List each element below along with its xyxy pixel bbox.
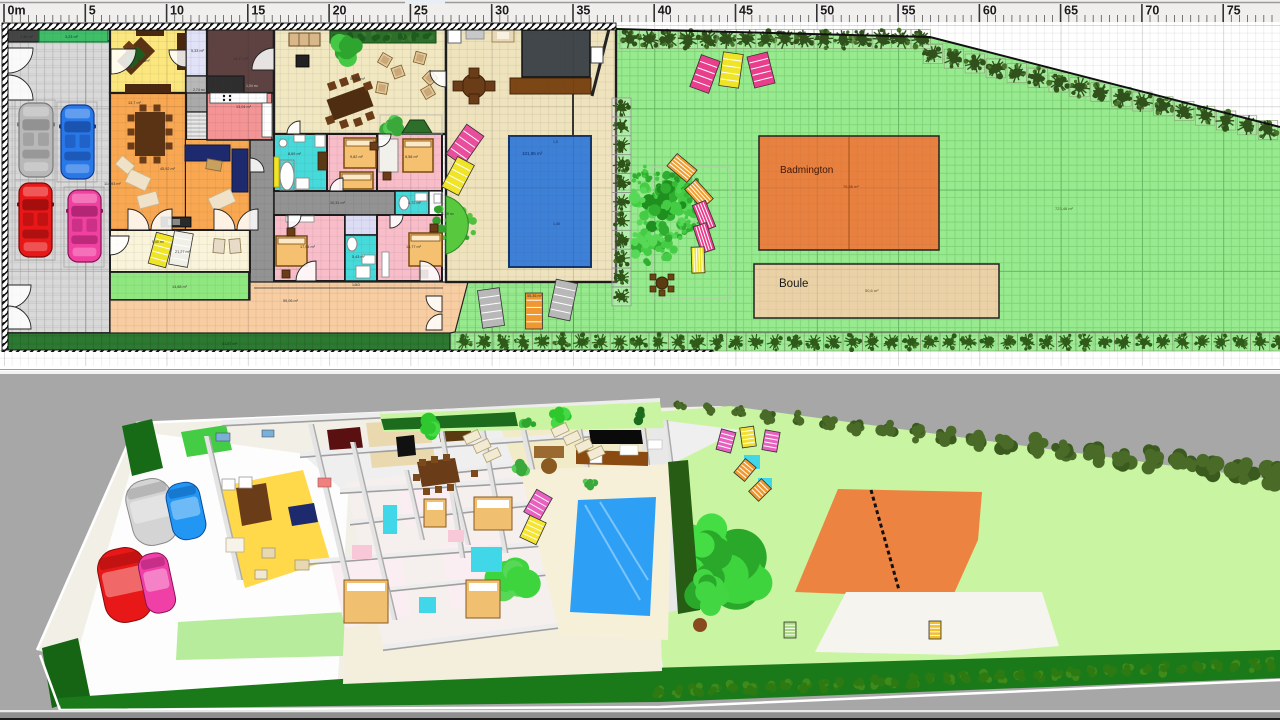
svg-text:55,36 m²: 55,36 m² bbox=[527, 294, 543, 298]
svg-text:8,58 m²: 8,58 m² bbox=[405, 155, 419, 159]
svg-text:10: 10 bbox=[170, 4, 184, 18]
svg-text:75: 75 bbox=[1227, 4, 1241, 18]
svg-text:114,93 m²: 114,93 m² bbox=[104, 182, 122, 186]
svg-text:Boule: Boule bbox=[779, 278, 808, 290]
svg-text:4,72 m²: 4,72 m² bbox=[408, 201, 422, 205]
svg-text:13,04 m²: 13,04 m² bbox=[236, 105, 252, 109]
svg-text:5,40 m²: 5,40 m² bbox=[152, 240, 165, 244]
svg-text:1,04 m²: 1,04 m² bbox=[246, 84, 259, 88]
svg-text:30: 30 bbox=[495, 4, 509, 18]
svg-text:1,40: 1,40 bbox=[553, 222, 560, 226]
svg-text:21,27 m²: 21,27 m² bbox=[175, 250, 191, 254]
svg-text:5,33 m²: 5,33 m² bbox=[191, 49, 205, 53]
svg-text:15: 15 bbox=[251, 4, 265, 18]
svg-text:31,87 m²: 31,87 m² bbox=[222, 342, 238, 346]
svg-text:25: 25 bbox=[414, 4, 428, 18]
svg-text:10,31 m²: 10,31 m² bbox=[330, 201, 346, 205]
svg-text:55: 55 bbox=[902, 4, 916, 18]
svg-text:1,30 m²: 1,30 m² bbox=[20, 35, 34, 39]
svg-text:101,95 m²: 101,95 m² bbox=[522, 151, 543, 156]
svg-text:2,74 m²: 2,74 m² bbox=[193, 88, 206, 92]
svg-text:9,82 m²: 9,82 m² bbox=[350, 155, 364, 159]
svg-text:8,69 m²: 8,69 m² bbox=[288, 152, 302, 156]
svg-text:45,92 m²: 45,92 m² bbox=[160, 167, 176, 171]
svg-text:Badmington: Badmington bbox=[780, 165, 833, 176]
svg-text:40: 40 bbox=[658, 4, 672, 18]
svg-text:8,18m²: 8,18m² bbox=[138, 59, 151, 63]
svg-text:76,86 m²: 76,86 m² bbox=[843, 184, 859, 189]
svg-text:1,39 m²: 1,39 m² bbox=[442, 212, 455, 216]
svg-text:59,06 m²: 59,06 m² bbox=[283, 299, 299, 303]
svg-text:0m: 0m bbox=[8, 4, 26, 18]
svg-text:65: 65 bbox=[1064, 4, 1078, 18]
svg-text:14,77 m²: 14,77 m² bbox=[406, 245, 422, 249]
svg-text:723,46 m²: 723,46 m² bbox=[1055, 206, 1074, 211]
svg-text:5: 5 bbox=[89, 4, 96, 18]
svg-text:35: 35 bbox=[576, 4, 590, 18]
svg-text:1463: 1463 bbox=[352, 283, 360, 287]
svg-text:45: 45 bbox=[739, 4, 753, 18]
svg-text:5,43 m²: 5,43 m² bbox=[352, 255, 366, 259]
svg-text:50,6 m²: 50,6 m² bbox=[865, 288, 879, 293]
svg-text:70: 70 bbox=[1145, 4, 1159, 18]
svg-text:13,17 m²: 13,17 m² bbox=[233, 57, 249, 61]
svg-text:50: 50 bbox=[820, 4, 834, 18]
svg-text:1,0: 1,0 bbox=[553, 140, 558, 144]
svg-text:13,7 m²: 13,7 m² bbox=[128, 101, 142, 105]
svg-text:59,34 m²: 59,34 m² bbox=[350, 77, 366, 81]
svg-text:14,68 m²: 14,68 m² bbox=[172, 285, 188, 289]
svg-text:20: 20 bbox=[333, 4, 347, 18]
svg-text:3,23 m²: 3,23 m² bbox=[65, 35, 79, 39]
svg-text:17,04 m²: 17,04 m² bbox=[300, 245, 316, 249]
svg-text:60: 60 bbox=[983, 4, 997, 18]
